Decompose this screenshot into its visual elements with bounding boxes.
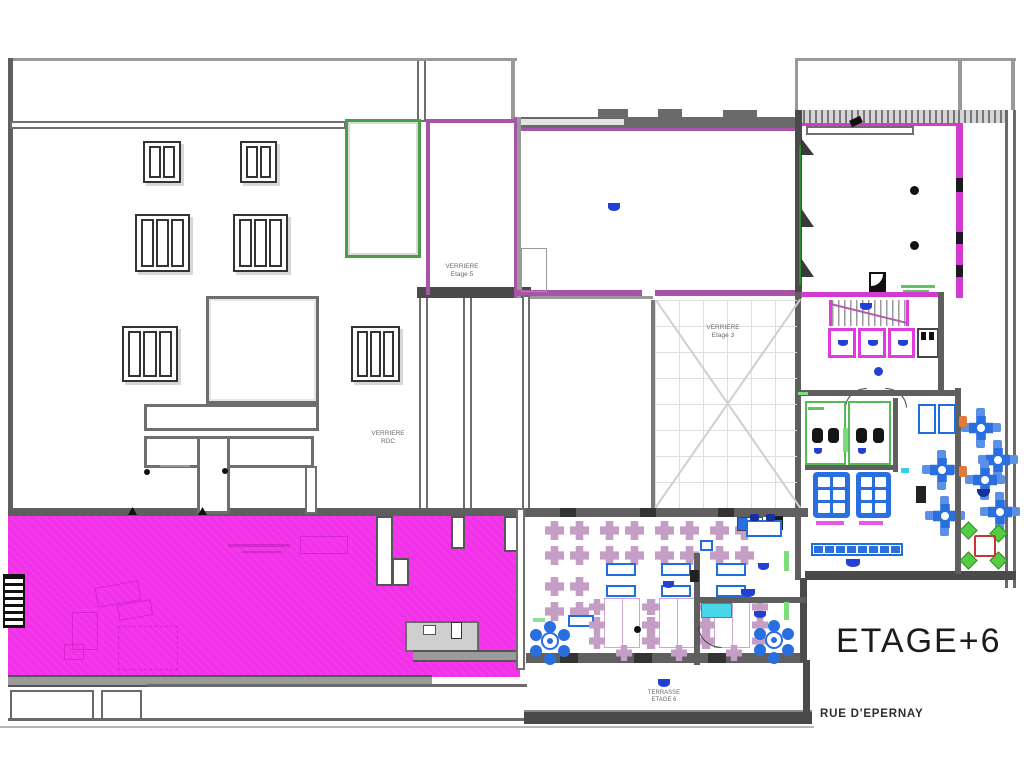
label-verriere-etage5: VERRIERE Etage 5 [424,263,500,279]
facade-notch [658,109,682,118]
elevator-cab [828,328,856,358]
core-right-wall [938,292,944,396]
channel-top-line [417,58,517,61]
round-table-group [753,620,795,662]
window-mark [718,508,734,517]
window-2pane [143,141,181,183]
tr-line-2 [958,60,962,112]
bench-table [604,598,640,648]
corridor-wall-b [463,295,472,515]
terrace6-east-wall [803,660,810,716]
tiny-annotation-line [160,465,190,467]
chair-navy [766,514,775,521]
door-marker [860,303,872,310]
chair-orange [959,466,967,477]
elevator-cab [858,328,886,358]
sink [741,589,755,597]
sidewalk-box [101,690,142,720]
chair [545,602,564,621]
terrace-notch-foot [392,558,409,586]
label-line: ETAGE 6 [652,697,677,703]
lobby-marker [874,367,883,376]
inner-corner-line [521,248,547,292]
black-cabinet [916,486,926,503]
shelf-line [806,126,914,135]
cross-table [930,458,954,482]
facade-inner-strip [520,119,624,125]
sidewalk-line [147,684,527,687]
facade-notch [598,109,628,118]
light-well-bar [144,404,319,431]
street-label: RUE D'EPERNAY [820,708,923,720]
tr-line-3 [1011,60,1015,112]
label-verriere-rdc: VERRIERE RDC [358,430,418,446]
roof-band-line [10,121,346,129]
south-east-wall [805,571,1016,580]
round-table-group [529,621,571,663]
door-mark [929,332,934,340]
shaft-channel-left [417,58,426,122]
window-break [956,178,963,192]
light-well-leg [197,436,230,514]
green-door-mark [798,392,808,395]
side-desk [700,540,713,551]
meeting-table [813,472,850,518]
street-edge-line [0,726,814,728]
label-line: RDC [381,438,395,445]
core-top-wall [797,292,942,297]
column-marker [144,469,150,475]
meeting-table [856,472,891,518]
desk-cluster [543,519,595,577]
chair [655,521,674,540]
door-marker [758,563,769,570]
cross-table [988,500,1012,524]
terrace-notch [376,516,393,586]
green-door-mark [784,551,789,571]
door-leaf [801,208,814,227]
channel-right-line [511,58,515,120]
door-marker [663,581,674,588]
chair [570,577,589,596]
window-break [956,265,963,277]
column-marker [634,626,641,633]
chair [545,577,564,596]
terrace-platform [405,621,479,652]
bench-seat-row [811,543,903,556]
sink [754,611,766,618]
terrace6-south-wall [524,710,812,724]
door-marker [898,340,908,346]
chair-orange [959,416,967,427]
door-leaf [801,138,814,155]
green-roof-outline [345,119,421,258]
terrace-furniture-outline [300,536,348,554]
terrace-furniture-outline [64,644,84,660]
floor-plan-canvas: VERRIERE Etage 5 VERRIERE RDC VERRIERE E… [0,0,1024,768]
green-door-mark [784,602,789,620]
green-jamb [799,145,801,285]
tr-line-1 [795,60,798,112]
toilet [812,428,823,443]
label-line: Etage 5 [451,271,473,278]
wc-room [848,401,891,465]
kitchen-counter [701,603,732,618]
label-line: VERRIERE [371,430,404,437]
room-label-ghost [816,521,844,525]
door-marker [868,340,878,346]
chair [625,521,644,540]
chair [545,546,564,565]
room-bottom-purple [514,290,802,296]
office-west-wall [516,508,525,670]
door-mark [921,332,926,340]
column-marker [910,186,919,195]
door-marker [608,203,620,211]
wc-label-ghost [808,407,824,410]
top-edge-line [8,58,422,61]
left-wing-south-wall [8,508,524,516]
toilet [828,428,839,443]
office-east-wall [800,578,807,662]
green-door-mark [843,428,848,452]
door-gap [642,290,655,296]
chair [589,633,605,649]
label-line: VERRIERE [445,263,478,270]
door-marker [838,340,848,346]
facade-notch [723,110,757,118]
chair-navy [750,514,759,521]
black-post [690,570,699,582]
chair [710,521,729,540]
scale-bar [3,574,25,628]
platform-item [423,625,436,635]
label-terrasse-etage6: TERRASSE ETAGE 6 [636,690,692,704]
chair [570,521,589,540]
label-line: Etage 3 [712,332,734,339]
desk [746,520,782,537]
room-label-ghost [859,521,883,525]
facade-purple-line [514,128,800,131]
label-verriere-etage3: VERRIERE Etage 3 [688,324,758,340]
desk [716,563,746,576]
column-marker [222,468,228,474]
label-line: VERRIERE [706,324,739,331]
red-table [974,535,996,557]
mid-corridor-wall [522,295,530,513]
toilet [856,428,867,443]
cross-table [969,416,993,440]
terrace-step-wall [413,650,523,662]
divider-wall [893,398,898,472]
cross-table [933,504,957,528]
sink [814,448,822,454]
window-2pane [240,141,277,183]
terrace-rug-outline [118,626,178,670]
light-well-right [305,466,317,514]
column-marker [910,241,919,250]
window-break [956,232,963,244]
window-3pane [122,326,178,382]
window-mark [640,508,656,517]
round-table [765,631,783,649]
area-annotation [901,285,935,288]
terrace-text-ghost [228,544,290,547]
green-door-mark [533,618,545,622]
floor-title: ETAGE+6 [836,622,1002,661]
window-3pane [135,214,190,272]
chair [600,521,619,540]
terrace-text-ghost [242,551,282,553]
window-3pane [233,214,288,272]
chair [545,521,564,540]
teal-mark [901,468,909,473]
meeting-wall [805,465,897,470]
terrace-slot [451,516,465,549]
elevator-cab [888,328,915,358]
sink [858,448,866,454]
stair-shaft [206,296,319,404]
sidewalk-line [8,718,524,721]
window-3pane [351,326,400,382]
door-marker [846,559,860,567]
bench-table [659,598,695,648]
door-leaf [801,258,814,277]
desk [938,404,956,434]
toilet [873,428,884,443]
chair [570,546,589,565]
bench-desk-group [598,585,650,655]
round-table [541,632,559,650]
desk [918,404,936,434]
sidewalk-box [10,690,94,720]
label-line: TERRASSE [648,690,680,696]
door-marker [658,679,670,687]
corridor-wall [795,390,960,396]
desk [661,563,691,576]
platform-item [451,622,462,639]
window-mark [560,508,576,517]
desk [606,563,636,576]
top-right-edge-line [795,58,1016,61]
corridor-wall-a [419,295,428,515]
desk [606,585,636,597]
chair [680,521,699,540]
